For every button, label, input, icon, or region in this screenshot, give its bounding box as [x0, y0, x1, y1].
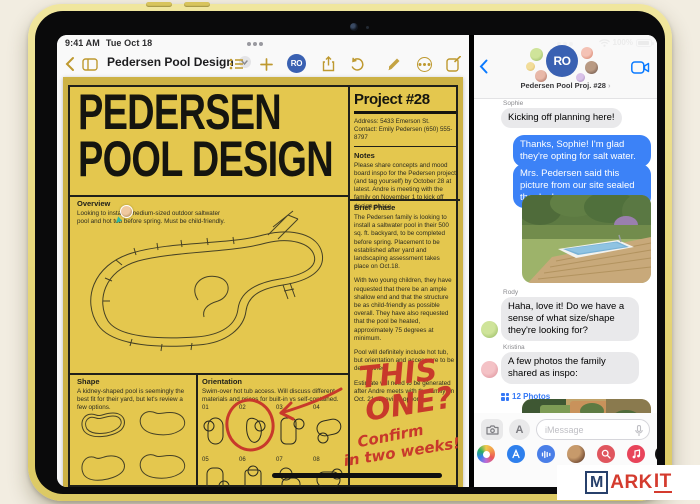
collaborator-avatar: [120, 205, 133, 218]
orientation-number: 02: [239, 405, 273, 411]
message-thread[interactable]: Sophie Kicking off planning here! Thanks…: [474, 99, 657, 413]
collab-logo-text: RO: [291, 59, 302, 68]
conversation-title[interactable]: Pedersen Pool Proj. #28 ›: [474, 81, 657, 90]
table-divider-vertical: [348, 87, 350, 485]
app-store-button[interactable]: A: [509, 419, 530, 440]
pool-sketch-drawing: [76, 207, 344, 371]
orientation-body: Swim-over hot tub access. Will discuss d…: [202, 388, 344, 404]
table-divider-horizontal-1: [70, 195, 350, 197]
group-member-avatar: [581, 47, 593, 59]
photos-app-icon[interactable]: [477, 445, 495, 463]
status-time: 9:41 AM: [65, 38, 100, 48]
overview-body: Looking to install a medium-sized outdoo…: [77, 210, 229, 226]
sender-name: Rody: [503, 289, 518, 296]
headline-line2: POOL DESIGN: [78, 136, 333, 183]
conversation-title-text: Pedersen Pool Proj. #28: [520, 81, 605, 90]
incoming-message[interactable]: A few photos the family shared as inspo:: [501, 352, 639, 384]
collaboration-avatar[interactable]: RO: [287, 54, 306, 73]
group-avatar-cluster[interactable]: RO: [524, 45, 604, 81]
ipad-device: 9:41 AMTue Oct 18 Pedersen Pool Design: [28, 4, 672, 501]
notes-toolbar: Pedersen Pool Design RO: [57, 51, 469, 77]
share-icon[interactable]: [319, 55, 337, 73]
home-indicator[interactable]: [272, 473, 442, 478]
messages-app-pane: 100% RO: [474, 35, 657, 487]
sender-avatar-rody: [481, 321, 498, 338]
camera-sensor-dot: [366, 26, 369, 29]
project-underline: [354, 111, 456, 114]
checklist-icon[interactable]: [227, 55, 245, 73]
markit-watermark: M ARK IT: [557, 465, 700, 500]
overview-section: Overview Looking to install a medium-siz…: [77, 199, 229, 226]
status-date: Tue Oct 18: [106, 38, 152, 48]
table-divider-horizontal-3: [70, 373, 350, 375]
note-title: Pedersen Pool Design: [107, 55, 234, 69]
digital-touch-icon[interactable]: [655, 445, 657, 463]
orientation-number: 03: [276, 405, 310, 411]
notes-app-pane: 9:41 AMTue Oct 18 Pedersen Pool Design: [57, 35, 469, 487]
orientation-number: 07: [276, 457, 310, 463]
headline-line1: PEDERSEN: [78, 89, 333, 136]
undo-icon[interactable]: [348, 55, 366, 73]
memoji-stickers-icon[interactable]: [567, 445, 585, 463]
music-app-icon[interactable]: [627, 445, 645, 463]
project-info-column: Project #28 Address: 5433 Emerson St. Co…: [354, 91, 456, 211]
sender-avatar-kristina: [481, 361, 498, 378]
overview-heading: Overview: [77, 199, 229, 208]
ipad-bezel: 9:41 AMTue Oct 18 Pedersen Pool Design: [35, 11, 665, 494]
volume-down-button[interactable]: [184, 2, 210, 7]
group-member-avatar: [526, 62, 535, 71]
note-headline: PEDERSEN POOL DESIGN: [78, 89, 333, 183]
orientation-heading: Orientation: [202, 377, 344, 386]
volume-up-button[interactable]: [146, 2, 172, 7]
more-icon[interactable]: [415, 55, 433, 73]
mic-icon[interactable]: [635, 424, 643, 442]
sender-name: Sophie: [503, 100, 523, 107]
watermark-m: M: [590, 474, 603, 492]
shape-options-sketches: [76, 403, 196, 487]
back-icon[interactable]: [61, 55, 79, 73]
group-logo-avatar: RO: [546, 45, 578, 77]
project-address: Address: 5433 Emerson St.: [354, 118, 456, 126]
orientation-number: 01: [202, 405, 236, 411]
sender-avatar-sophie: [481, 109, 498, 126]
split-view-handle-left[interactable]: [253, 42, 257, 46]
outgoing-message[interactable]: Thanks, Sophie! I'm glad they're opting …: [513, 135, 651, 167]
project-contact: Contact: Emily Pedersen (650) 555-8797: [354, 126, 456, 142]
project-heading: Project #28: [354, 91, 456, 108]
brief-paragraph-1: The Pedersen family is looking to instal…: [354, 214, 456, 271]
imessage-input[interactable]: [545, 420, 633, 439]
sidebar-icon[interactable]: [81, 55, 99, 73]
messages-back-icon[interactable]: [479, 59, 488, 79]
ipad-screen: 9:41 AMTue Oct 18 Pedersen Pool Design: [57, 35, 657, 487]
facetime-video-icon[interactable]: [631, 61, 650, 79]
orientation-number: 08: [313, 457, 347, 463]
incoming-message[interactable]: Kicking off planning here!: [501, 108, 622, 128]
brief-paragraph-2: With two young children, they have reque…: [354, 277, 456, 343]
orientation-number: 06: [239, 457, 273, 463]
audio-app-icon[interactable]: [537, 445, 555, 463]
group-logo-text: RO: [554, 54, 571, 68]
group-member-avatar: [530, 48, 543, 61]
markup-pen-icon[interactable]: [385, 55, 403, 73]
add-icon[interactable]: [257, 55, 275, 73]
imessage-input-pill[interactable]: [536, 419, 650, 440]
brief-heading: Brief Phase: [354, 203, 456, 212]
notes-block-heading: Notes: [354, 151, 456, 160]
compose-note-icon[interactable]: [445, 55, 463, 73]
collaborator-cursor: [120, 205, 133, 218]
title-chevron-icon: ›: [608, 81, 611, 90]
photo-collage-attachment[interactable]: [522, 399, 651, 413]
project-divider: [354, 146, 456, 147]
desktop-background: 9:41 AMTue Oct 18 Pedersen Pool Design: [0, 0, 700, 504]
group-member-avatar: [585, 61, 598, 74]
sender-name: Kristina: [503, 344, 525, 351]
orientation-number: 05: [202, 457, 236, 463]
table-divider-shape-orientation: [196, 373, 198, 487]
pool-photo-attachment[interactable]: [522, 195, 651, 283]
orientation-section: Orientation Swim-over hot tub access. Wi…: [202, 377, 344, 404]
app-store-app-icon[interactable]: [507, 445, 525, 463]
status-bar-left: 9:41 AMTue Oct 18: [65, 38, 158, 48]
shape-heading: Shape: [77, 377, 191, 386]
watermark-m-box: M: [585, 471, 608, 494]
incoming-message[interactable]: Haha, love it! Do we have a sense of wha…: [501, 297, 639, 341]
camera-button[interactable]: [481, 419, 503, 440]
watermark-it: IT: [654, 472, 672, 493]
front-camera: [350, 23, 358, 31]
watermark-ark: ARK: [610, 472, 653, 494]
hashtag-images-icon[interactable]: [597, 445, 615, 463]
photos-grid-icon: [501, 393, 509, 401]
messages-header: RO Pedersen Pool Proj. #28 ›: [474, 35, 657, 99]
app-store-letter: A: [516, 424, 524, 436]
orientation-number: 04: [313, 405, 347, 411]
